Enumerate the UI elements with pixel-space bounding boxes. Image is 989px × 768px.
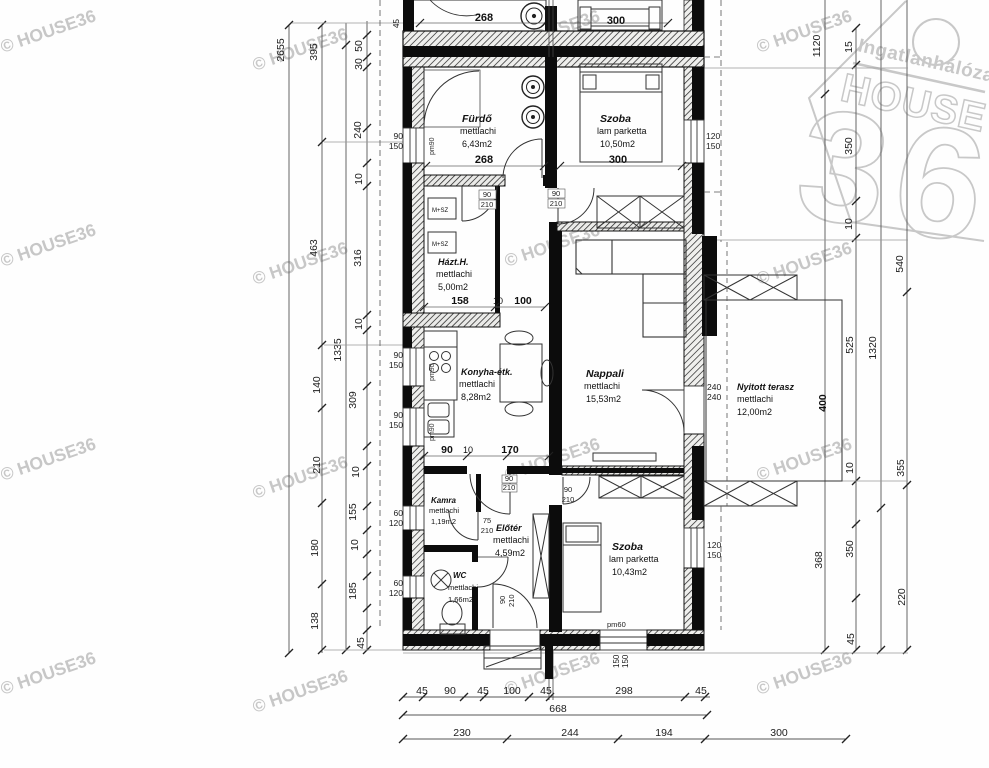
svg-text:240: 240 <box>707 392 721 402</box>
svg-text:230: 230 <box>453 727 471 739</box>
svg-text:150: 150 <box>389 360 403 370</box>
svg-text:90: 90 <box>394 410 404 420</box>
svg-text:10: 10 <box>350 466 362 478</box>
svg-text:150: 150 <box>612 654 621 668</box>
svg-text:244: 244 <box>561 727 579 739</box>
svg-text:268: 268 <box>475 12 493 24</box>
svg-text:368: 368 <box>813 551 825 569</box>
svg-text:350: 350 <box>844 540 856 558</box>
svg-text:50: 50 <box>353 40 365 52</box>
svg-text:309: 309 <box>347 391 359 409</box>
svg-text:8,28m2: 8,28m2 <box>461 392 491 402</box>
svg-text:lam parketta: lam parketta <box>609 554 659 564</box>
svg-text:155: 155 <box>347 503 359 521</box>
svg-text:90: 90 <box>552 189 560 198</box>
svg-text:1320: 1320 <box>867 336 879 360</box>
svg-text:194: 194 <box>655 727 673 739</box>
svg-text:pm60: pm60 <box>607 620 626 629</box>
svg-text:90: 90 <box>483 190 491 199</box>
svg-text:30: 30 <box>353 58 365 70</box>
svg-text:90: 90 <box>394 131 404 141</box>
svg-text:185: 185 <box>347 582 359 600</box>
svg-text:75: 75 <box>483 516 491 525</box>
svg-text:525: 525 <box>844 336 856 354</box>
svg-text:45: 45 <box>540 685 552 697</box>
svg-text:60: 60 <box>394 578 404 588</box>
svg-text:120: 120 <box>706 131 720 141</box>
svg-text:210: 210 <box>481 526 494 535</box>
svg-text:Nappali: Nappali <box>586 368 625 380</box>
svg-text:10: 10 <box>463 445 473 455</box>
svg-text:Fürdő: Fürdő <box>462 113 492 125</box>
svg-text:10: 10 <box>843 218 855 230</box>
svg-text:M+SZ: M+SZ <box>432 208 449 214</box>
svg-text:210: 210 <box>503 483 516 492</box>
svg-text:180: 180 <box>309 539 321 557</box>
svg-text:1,66m2: 1,66m2 <box>448 595 473 604</box>
svg-text:45: 45 <box>392 19 401 28</box>
svg-text:10,43m2: 10,43m2 <box>612 567 647 577</box>
svg-text:150: 150 <box>707 550 721 560</box>
svg-text:mettlachi: mettlachi <box>429 506 459 515</box>
svg-text:240: 240 <box>707 382 721 392</box>
svg-text:150: 150 <box>706 141 720 151</box>
svg-text:10: 10 <box>353 173 365 185</box>
svg-text:Kamra: Kamra <box>431 496 456 505</box>
svg-text:15,53m2: 15,53m2 <box>586 394 621 404</box>
svg-text:170: 170 <box>501 444 519 456</box>
svg-text:400: 400 <box>817 394 829 412</box>
svg-text:90: 90 <box>441 444 453 456</box>
svg-text:268: 268 <box>475 154 493 166</box>
svg-text:668: 668 <box>549 703 567 715</box>
svg-text:10: 10 <box>844 462 856 474</box>
svg-text:5,00m2: 5,00m2 <box>438 282 468 292</box>
svg-text:Szoba: Szoba <box>612 541 643 553</box>
svg-text:45: 45 <box>477 685 489 697</box>
svg-text:10: 10 <box>349 539 361 551</box>
svg-text:mettlachi: mettlachi <box>737 394 773 404</box>
svg-text:210: 210 <box>507 594 516 607</box>
svg-text:lam parketta: lam parketta <box>597 126 647 136</box>
svg-text:10: 10 <box>353 318 365 330</box>
svg-text:150: 150 <box>389 141 403 151</box>
svg-text:150: 150 <box>389 420 403 430</box>
svg-text:WC: WC <box>453 571 467 580</box>
svg-text:mettlachi: mettlachi <box>493 535 529 545</box>
svg-text:mettlachi: mettlachi <box>459 379 495 389</box>
svg-text:12,00m2: 12,00m2 <box>737 407 772 417</box>
svg-text:pm90: pm90 <box>429 137 436 155</box>
svg-text:158: 158 <box>451 295 469 307</box>
svg-text:1335: 1335 <box>332 338 344 362</box>
svg-text:316: 316 <box>352 249 364 267</box>
svg-text:90: 90 <box>498 596 507 604</box>
svg-text:100: 100 <box>503 685 521 697</box>
svg-text:45: 45 <box>355 637 367 649</box>
svg-text:Szoba: Szoba <box>600 113 631 125</box>
svg-text:Nyitott terasz: Nyitott terasz <box>737 382 795 392</box>
svg-text:395: 395 <box>308 43 320 61</box>
svg-text:210: 210 <box>311 456 323 474</box>
svg-text:298: 298 <box>615 685 633 697</box>
svg-text:15: 15 <box>843 41 855 53</box>
svg-text:220: 220 <box>896 588 908 606</box>
svg-text:4,59m2: 4,59m2 <box>495 548 525 558</box>
svg-text:300: 300 <box>607 15 625 27</box>
svg-text:45: 45 <box>695 685 707 697</box>
svg-text:240: 240 <box>352 121 364 139</box>
svg-text:120: 120 <box>707 540 721 550</box>
svg-text:90: 90 <box>564 485 572 494</box>
svg-text:140: 140 <box>311 376 323 394</box>
svg-text:10,50m2: 10,50m2 <box>600 139 635 149</box>
svg-text:Házt.H.: Házt.H. <box>438 257 469 267</box>
svg-text:Előtér: Előtér <box>496 523 522 533</box>
svg-text:45: 45 <box>416 685 428 697</box>
svg-text:36: 36 <box>787 75 989 278</box>
svg-text:300: 300 <box>609 154 627 166</box>
svg-text:210: 210 <box>562 495 575 504</box>
svg-text:150: 150 <box>621 654 630 668</box>
svg-text:mettlachi: mettlachi <box>448 583 478 592</box>
svg-text:540: 540 <box>894 255 906 273</box>
svg-text:90: 90 <box>505 474 513 483</box>
svg-text:10: 10 <box>493 296 503 306</box>
svg-text:120: 120 <box>389 518 403 528</box>
svg-text:mettlachi: mettlachi <box>436 269 472 279</box>
svg-text:pm90: pm90 <box>429 423 436 441</box>
svg-text:120: 120 <box>389 588 403 598</box>
svg-text:100: 100 <box>514 295 532 307</box>
svg-text:210: 210 <box>550 199 563 208</box>
svg-text:6,43m2: 6,43m2 <box>462 139 492 149</box>
svg-text:463: 463 <box>308 239 320 257</box>
svg-text:mettlachi: mettlachi <box>584 381 620 391</box>
svg-text:M+SZ: M+SZ <box>432 242 449 248</box>
svg-text:mettlachi: mettlachi <box>460 126 496 136</box>
svg-text:90: 90 <box>444 685 456 697</box>
svg-text:1120: 1120 <box>811 35 823 58</box>
svg-text:Konyha-étk.: Konyha-étk. <box>461 367 513 377</box>
svg-text:60: 60 <box>394 508 404 518</box>
svg-text:2655: 2655 <box>275 38 287 62</box>
svg-text:90: 90 <box>394 350 404 360</box>
svg-text:138: 138 <box>309 612 321 630</box>
svg-text:210: 210 <box>481 200 494 209</box>
svg-text:355: 355 <box>895 459 907 477</box>
svg-text:300: 300 <box>770 727 788 739</box>
svg-text:350: 350 <box>843 137 855 155</box>
svg-text:45: 45 <box>845 633 857 645</box>
